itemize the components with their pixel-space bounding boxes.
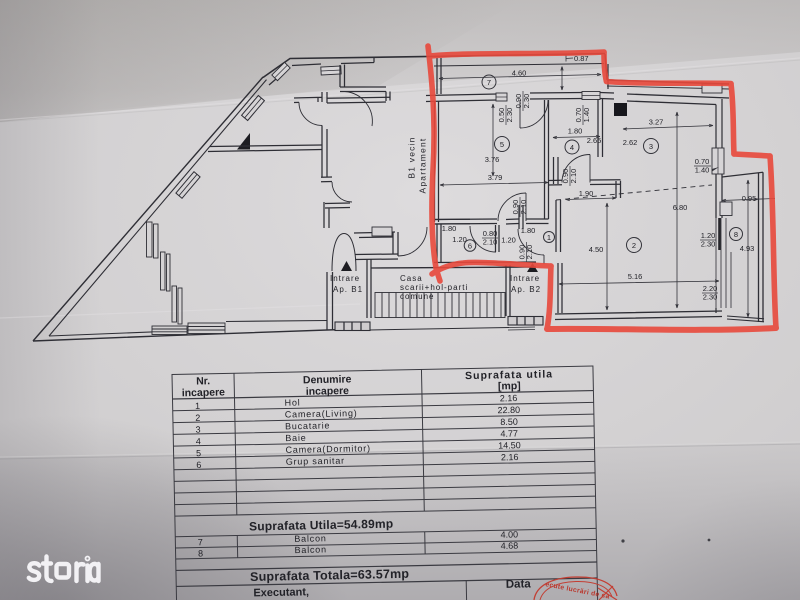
svg-text:1.80: 1.80 [568,127,583,136]
svg-text:B1 vecin: B1 vecin [407,136,417,178]
svg-text:Data: Data [506,578,532,591]
svg-text:1.40: 1.40 [695,166,710,175]
svg-text:4.68: 4.68 [501,541,519,551]
svg-text:1: 1 [547,233,551,242]
svg-text:2.16: 2.16 [500,393,518,403]
svg-text:0.95: 0.95 [742,194,757,203]
svg-text:4.00: 4.00 [500,529,518,539]
svg-text:1.90: 1.90 [579,189,594,198]
svg-text:2.65: 2.65 [587,136,602,145]
svg-text:2.62: 2.62 [623,138,638,147]
svg-text:2.10: 2.10 [483,238,498,247]
svg-text:1.80: 1.80 [521,226,536,235]
svg-text:1: 1 [195,401,200,411]
svg-text:8.50: 8.50 [500,417,518,427]
svg-text:4.93: 4.93 [740,244,755,253]
svg-text:4.60: 4.60 [512,69,527,78]
svg-text:6: 6 [468,242,472,251]
svg-text:Baie: Baie [285,433,306,443]
svg-text:4: 4 [570,143,574,152]
svg-text:2.30: 2.30 [703,293,718,302]
svg-text:1.20: 1.20 [452,235,467,244]
svg-text:incapere: incapere [182,386,226,399]
svg-text:3.27: 3.27 [649,118,664,127]
svg-text:6.80: 6.80 [673,203,688,212]
svg-text:3.79: 3.79 [488,173,503,182]
svg-text:comune: comune [400,292,434,301]
svg-text:22.80: 22.80 [497,405,520,415]
svg-text:Camera(Living): Camera(Living) [285,408,358,419]
svg-text:Ap. B1: Ap. B1 [333,285,363,294]
svg-text:Intrare: Intrare [330,274,360,283]
svg-text:4: 4 [196,436,201,446]
svg-text:1.80: 1.80 [442,224,457,233]
svg-text:6: 6 [196,460,201,470]
svg-text:3: 3 [196,425,201,435]
svg-text:7: 7 [198,537,203,547]
svg-text:Casa: Casa [400,274,423,283]
svg-text:Executant,: Executant, [253,586,309,599]
svg-text:8: 8 [734,230,738,239]
svg-text:Ap. B2: Ap. B2 [511,285,541,294]
svg-text:2: 2 [195,413,200,423]
svg-text:2: 2 [632,241,636,250]
svg-text:Hol: Hol [284,397,300,407]
svg-text:Intrare: Intrare [510,274,540,283]
svg-text:14.50: 14.50 [498,440,521,450]
svg-text:scarii+hol-parti: scarii+hol-parti [400,283,468,292]
svg-text:5.16: 5.16 [628,272,643,281]
svg-text:Nr.: Nr. [196,375,210,387]
svg-text:Suprafata Utila=54.89mp: Suprafata Utila=54.89mp [249,517,394,534]
svg-text:2.30: 2.30 [701,240,716,249]
svg-text:4.77: 4.77 [500,428,518,438]
svg-text:4.50: 4.50 [589,245,604,254]
svg-text:[mp]: [mp] [498,380,521,392]
svg-text:Bucatarie: Bucatarie [285,420,330,431]
svg-text:3.76: 3.76 [485,155,500,164]
svg-text:5: 5 [196,448,201,458]
svg-text:Apartament: Apartament [418,138,428,194]
svg-text:Camera(Dormitor): Camera(Dormitor) [285,443,370,455]
svg-text:Balcon: Balcon [294,544,327,555]
svg-text:1.20: 1.20 [501,236,516,245]
svg-text:3: 3 [649,142,653,151]
svg-text:8: 8 [198,548,203,558]
svg-text:incapere: incapere [306,385,350,398]
svg-text:5: 5 [500,140,504,149]
svg-text:7: 7 [487,78,491,87]
svg-text:Balcon: Balcon [294,533,327,544]
svg-text:Grup sanitar: Grup sanitar [286,456,345,467]
svg-text:2.16: 2.16 [501,452,519,462]
